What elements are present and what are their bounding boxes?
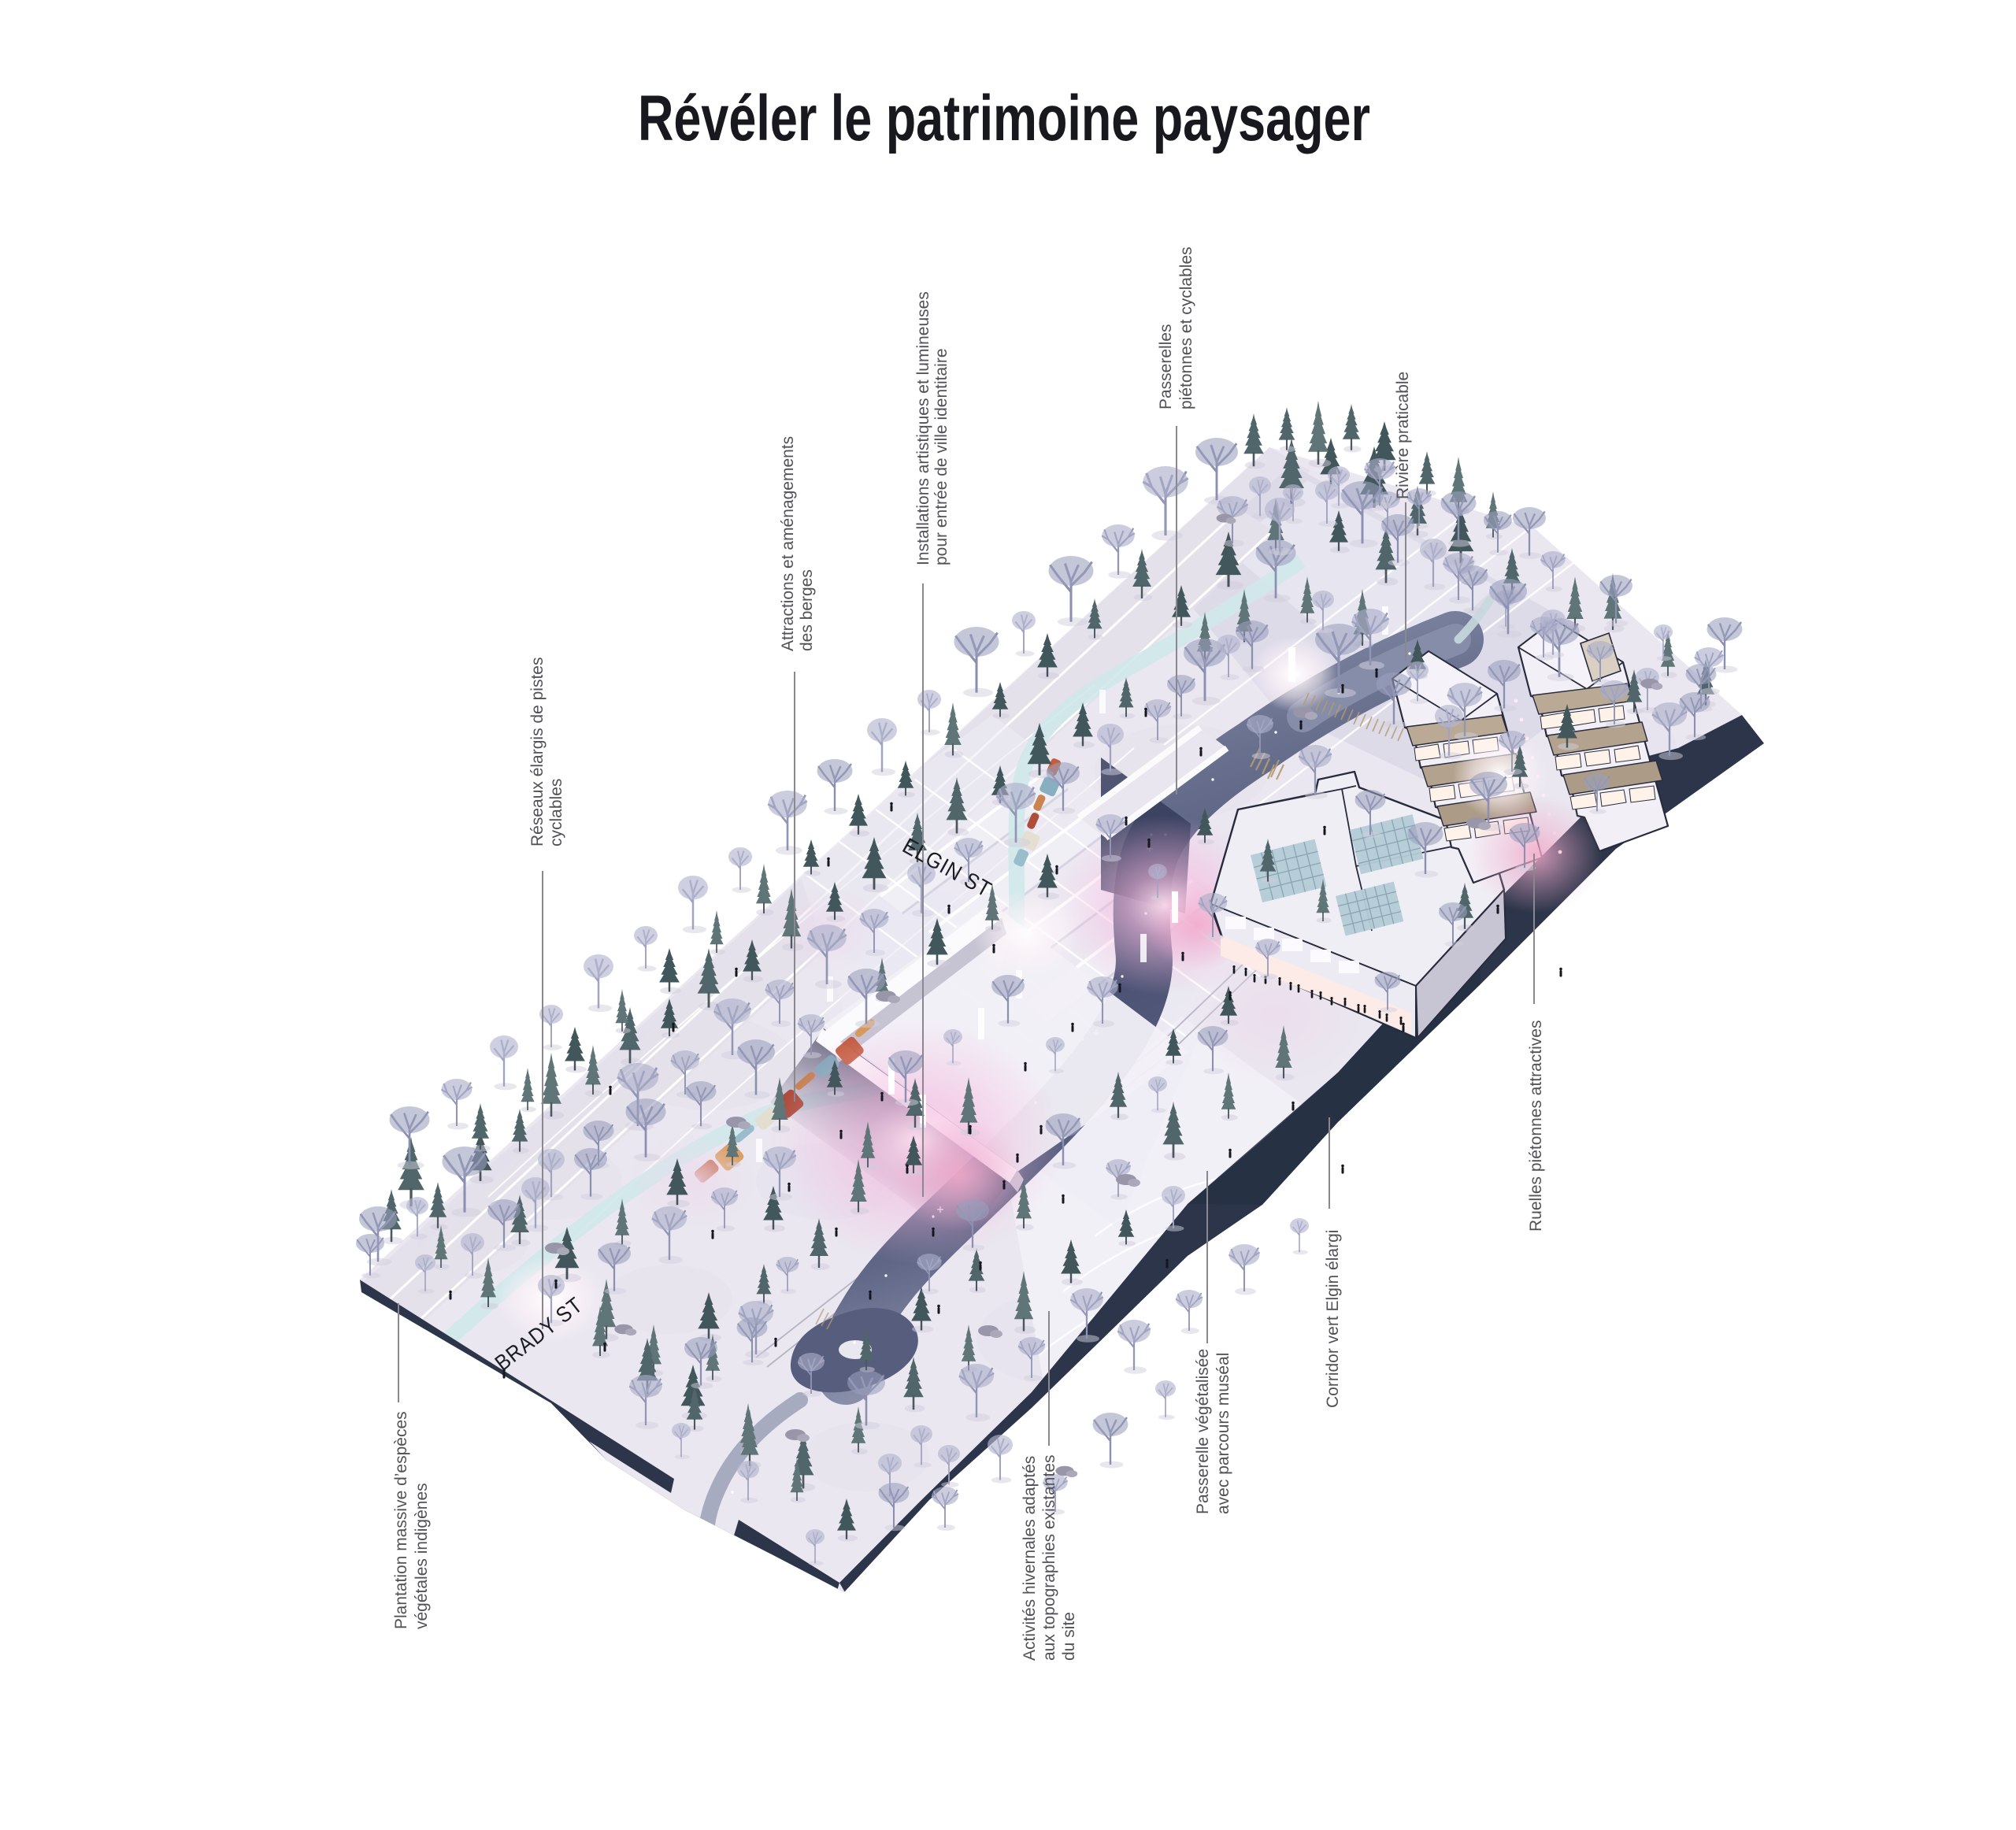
svg-text:Activités hivernales adaptés: Activités hivernales adaptés [1021, 1456, 1039, 1661]
svg-text:Révéler le patrimoine paysager: Révéler le patrimoine paysager [638, 83, 1370, 154]
svg-text:Passerelle végétalisée: Passerelle végétalisée [1194, 1349, 1212, 1514]
svg-text:Installations artistiques et l: Installations artistiques et lumineuses [914, 291, 932, 565]
svg-text:des berges: des berges [798, 569, 816, 651]
svg-text:Corridor vert Elgin élargi: Corridor vert Elgin élargi [1324, 1230, 1342, 1408]
svg-text:Plantation massive d’espèces: Plantation massive d’espèces [392, 1411, 410, 1629]
svg-text:Ruelles piétonnes attractives: Ruelles piétonnes attractives [1527, 1021, 1545, 1232]
svg-text:Réseaux élargis de pistes: Réseaux élargis de pistes [528, 658, 547, 846]
svg-text:végétales indigènes: végétales indigènes [413, 1483, 431, 1629]
svg-text:pour entrée de ville identitai: pour entrée de ville identitaire [932, 348, 951, 565]
svg-text:cyclables: cyclables [547, 779, 565, 846]
svg-text:Rivière praticable: Rivière praticable [1394, 372, 1412, 499]
svg-text:aux topographies existantes: aux topographies existantes [1040, 1454, 1058, 1661]
svg-text:Attractions et aménagements: Attractions et aménagements [779, 436, 797, 651]
svg-text:du site: du site [1060, 1612, 1078, 1661]
svg-text:Passerelles: Passerelles [1157, 324, 1175, 409]
svg-text:avec parcours muséal: avec parcours muséal [1214, 1353, 1232, 1514]
svg-text:piétonnes et cyclables: piétonnes et cyclables [1177, 246, 1195, 409]
